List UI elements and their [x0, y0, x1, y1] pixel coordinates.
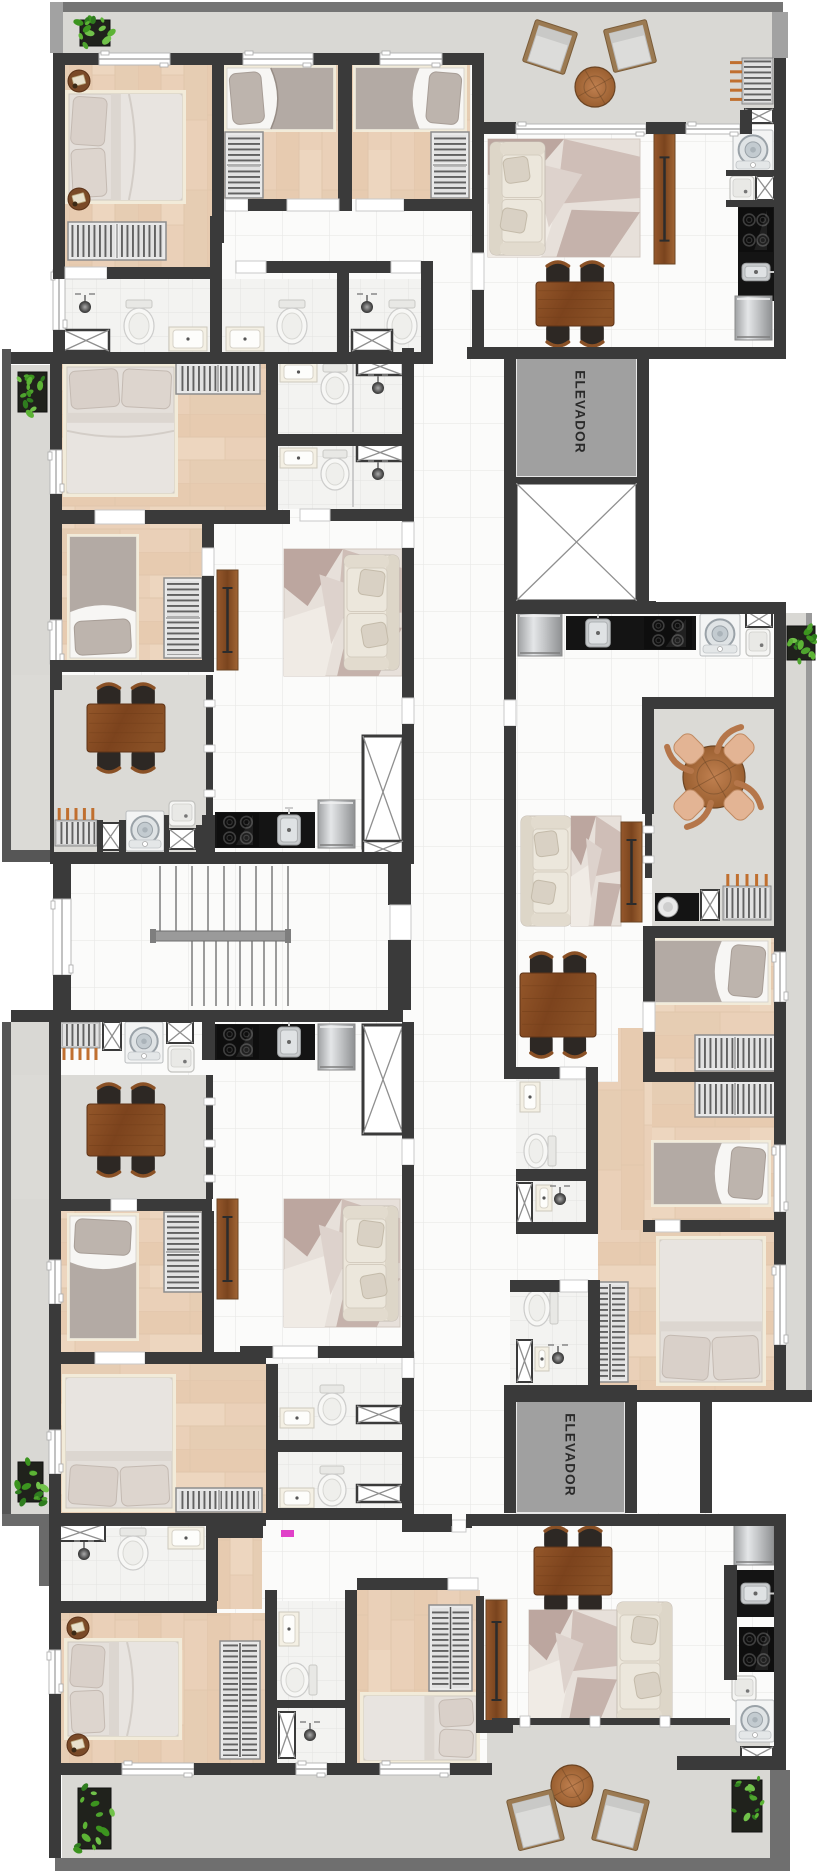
- svg-text:ELEVADOR: ELEVADOR: [563, 1413, 578, 1497]
- svg-text:ELEVADOR: ELEVADOR: [573, 370, 588, 454]
